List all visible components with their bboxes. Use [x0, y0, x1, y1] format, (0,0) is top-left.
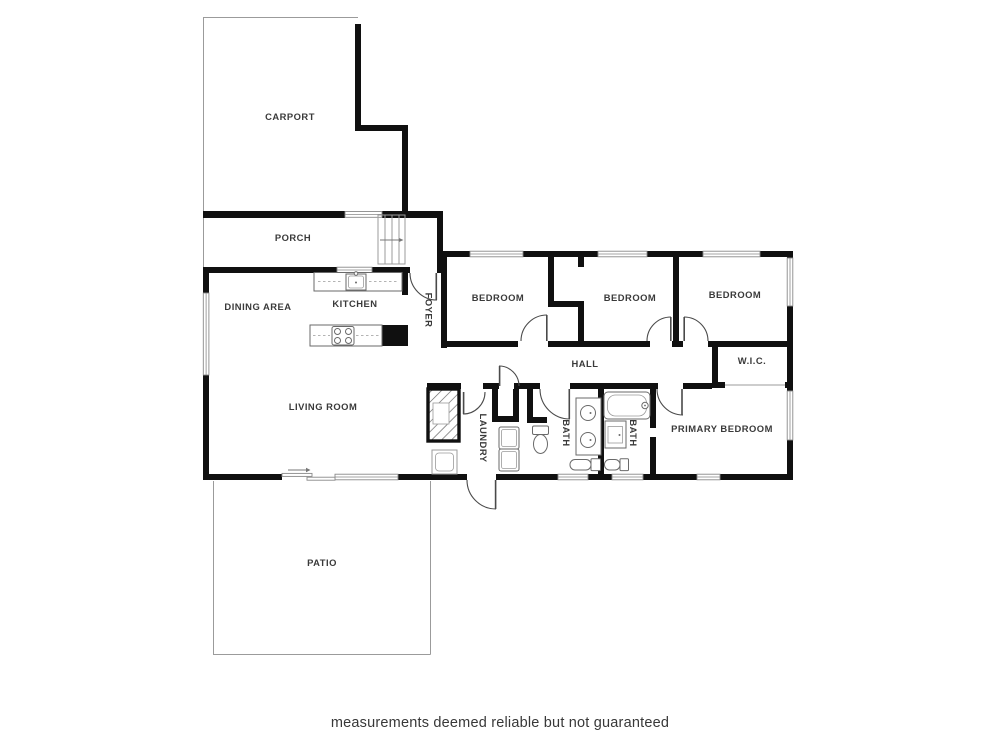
laundry-back-door — [467, 480, 496, 509]
room-label-carport: CARPORT — [265, 111, 315, 122]
bathtub — [604, 392, 650, 419]
window-bedroom-1 — [470, 251, 523, 257]
sliding-door — [282, 468, 335, 480]
bedroom-1-door — [521, 315, 547, 341]
kitchen-sink — [346, 272, 366, 290]
room-label-wic: W.I.C. — [738, 355, 767, 366]
room-label-bath-2: BATH — [628, 419, 639, 446]
washer-dryer — [499, 427, 519, 471]
laundry-door — [463, 392, 485, 414]
room-label-bedroom-3: BEDROOM — [709, 289, 761, 300]
bedroom-3-door — [684, 317, 708, 341]
room-label-dining-area: DINING AREA — [224, 301, 291, 312]
bath-1-door — [540, 389, 570, 419]
room-label-bedroom-1: BEDROOM — [472, 292, 524, 303]
fireplace-chimney — [428, 389, 459, 441]
vanity-sink — [605, 421, 626, 448]
room-label-hall: HALL — [572, 358, 599, 369]
floorplan-canvas: CARPORT PORCH DINING AREA KITCHEN FOYER … — [0, 0, 1000, 750]
room-label-foyer: FOYER — [424, 293, 435, 328]
room-label-bedroom-2: BEDROOM — [604, 292, 656, 303]
window-bedroom-2 — [598, 251, 647, 257]
bath-2-fixtures — [604, 392, 650, 471]
window-porch — [345, 212, 382, 218]
window-bedroom-3-right — [787, 258, 793, 306]
vanity-double-sink — [576, 398, 601, 455]
toilet-nook — [533, 426, 549, 454]
stove — [332, 327, 354, 346]
room-label-porch: PORCH — [275, 232, 311, 243]
room-labels: CARPORT PORCH DINING AREA KITCHEN FOYER … — [224, 111, 772, 568]
window-bath-2 — [612, 474, 643, 480]
window-primary-bottom — [697, 474, 720, 480]
disclaimer-text: measurements deemed reliable but not gua… — [331, 715, 669, 731]
toilet-bath-2 — [605, 459, 629, 471]
room-label-patio: PATIO — [307, 557, 337, 568]
porch-steps — [378, 215, 405, 264]
window-primary-right — [787, 391, 793, 440]
room-label-living-room: LIVING ROOM — [289, 401, 358, 412]
room-label-primary-bedroom: PRIMARY BEDROOM — [671, 423, 773, 434]
floorplan-page: CARPORT PORCH DINING AREA KITCHEN FOYER … — [0, 0, 1000, 750]
water-heater-closet — [432, 450, 457, 474]
window-living-left — [203, 293, 209, 375]
room-label-bath-1: BATH — [561, 419, 572, 446]
window-bath-1 — [558, 474, 588, 480]
bedroom-2-door — [647, 317, 671, 341]
window-bedroom-3 — [703, 251, 760, 257]
primary-bedroom-door — [657, 389, 683, 415]
room-label-kitchen: KITCHEN — [332, 298, 377, 309]
toilet-bath-1 — [570, 459, 601, 471]
room-label-laundry: LAUNDRY — [478, 414, 489, 463]
window-living-bottom — [335, 474, 398, 480]
